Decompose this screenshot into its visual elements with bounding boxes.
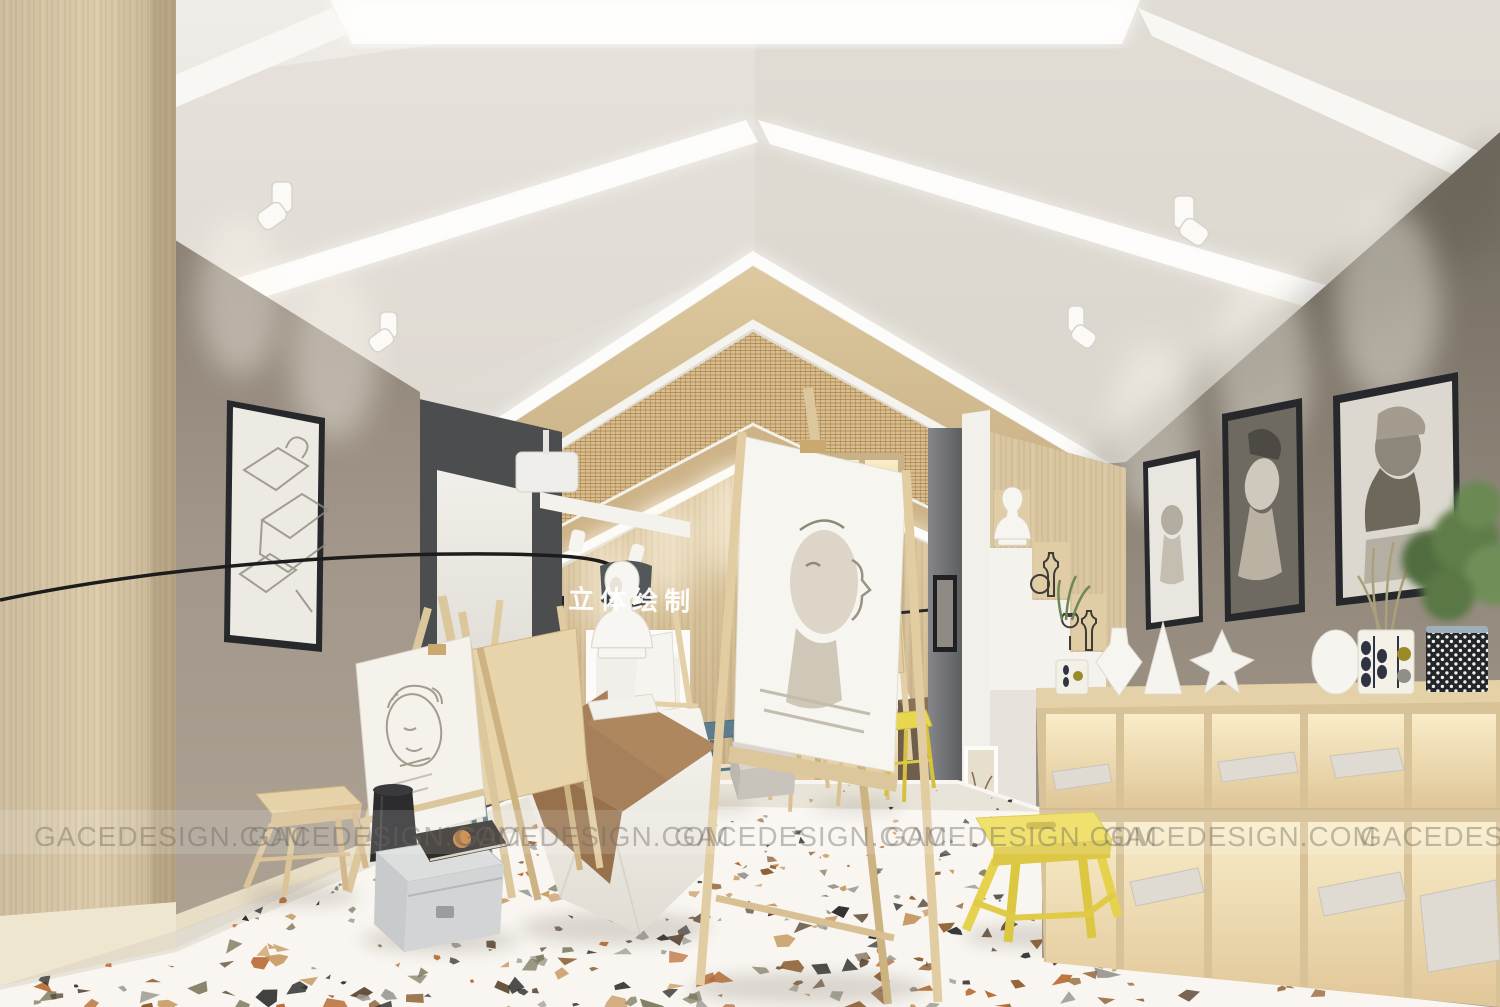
projector (516, 452, 578, 492)
art-studio-render: GACEDESIGN.COM GACEDESIGN.COM GACEDESIGN… (0, 0, 1500, 1007)
watermark-text: GACEDESIGN.COM (1103, 821, 1377, 852)
framed-portrait-2 (1222, 398, 1305, 622)
scene-canvas: GACEDESIGN.COM GACEDESIGN.COM GACEDESIGN… (0, 0, 1500, 1007)
watermark-text: GACEDESIGN.COM (1360, 821, 1500, 852)
framed-portrait-1 (1143, 450, 1203, 630)
left-wood-column (0, 0, 176, 1007)
watermark-band: GACEDESIGN.COM GACEDESIGN.COM GACEDESIGN… (0, 810, 1500, 854)
egg-sculpture (1312, 630, 1360, 694)
framed-geometric-sketch (224, 400, 328, 652)
wall-sign: 立体绘制 (568, 584, 697, 617)
